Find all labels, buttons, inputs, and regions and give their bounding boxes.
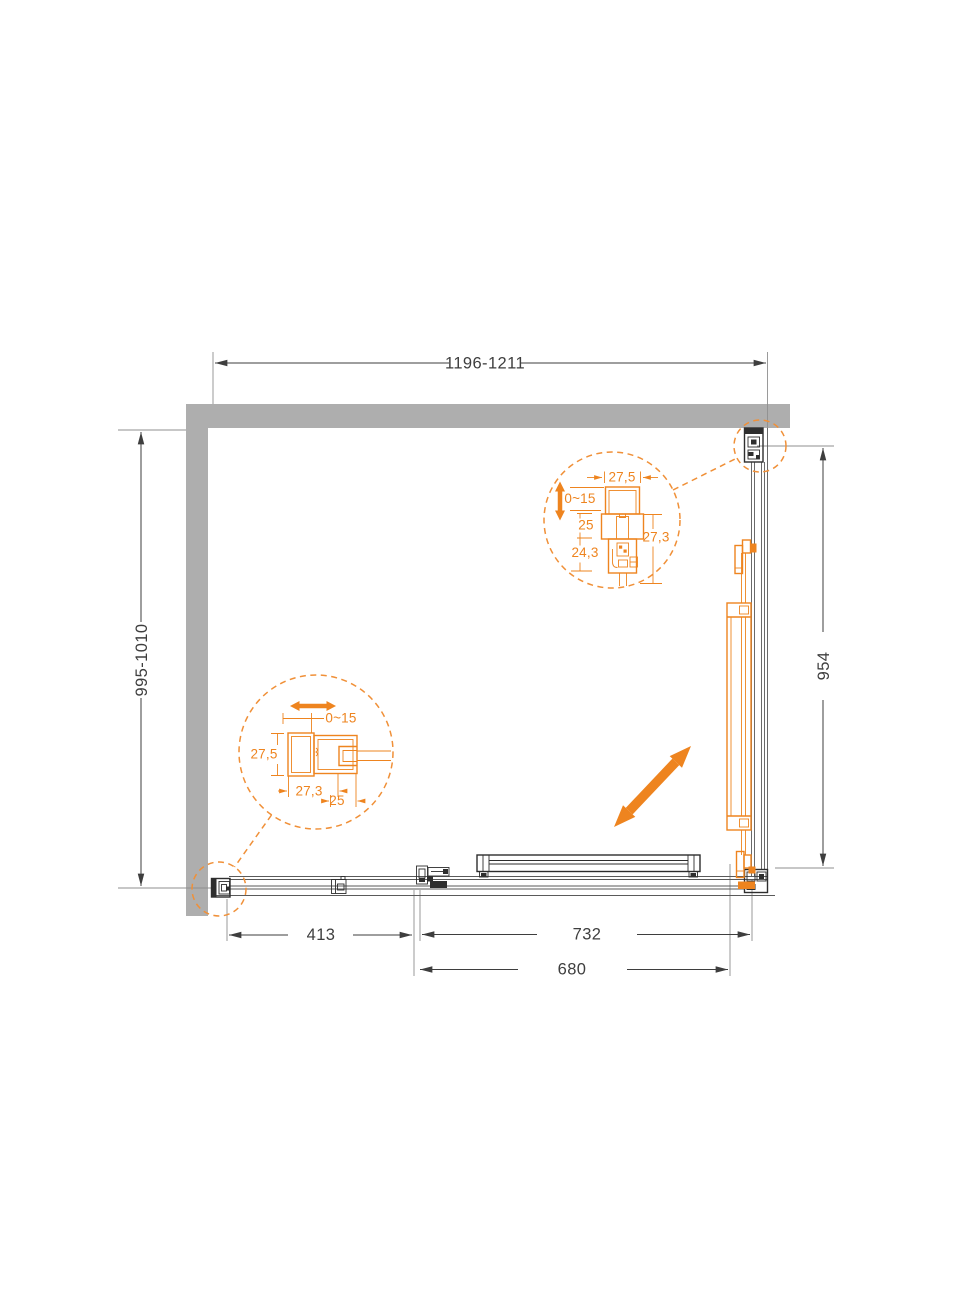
detail-side-width-label: 27,3: [295, 784, 322, 799]
detail-side-profile: 0~15 27,5 27,3 25: [250, 701, 391, 808]
dim-label-bottom-fixed: 413: [307, 926, 336, 944]
top-wall: [186, 404, 790, 428]
technical-drawing-page: 1196-1211 995-1010 954 413 732 680: [0, 0, 975, 1300]
corner-connector: [745, 870, 768, 893]
sliding-door-bottom: [477, 855, 700, 877]
dim-label-left-depth: 995-1010: [133, 624, 151, 697]
dim-bottom-entry: 680: [420, 961, 728, 979]
dim-label-top-width: 1196-1211: [445, 355, 525, 373]
opening-direction-arrow-icon: [614, 746, 691, 827]
right-track: [752, 428, 768, 893]
dim-label-right-side: 954: [815, 652, 833, 681]
dim-bottom-total: 732: [414, 864, 752, 976]
wall-profile-bottom-left: [212, 879, 231, 898]
bottom-track: [211, 877, 775, 896]
dim-bottom-fixed: 413: [227, 899, 412, 944]
leader-top-detail: [673, 458, 737, 490]
profile-section-vertical: [602, 487, 644, 586]
detail-top-width-label: 27,5: [608, 470, 635, 485]
wall-profile-top-right: [745, 428, 764, 462]
detail-side-height-label: 27,5: [250, 747, 277, 762]
door-roller-bottom-right: [737, 830, 756, 889]
walls: [186, 404, 790, 916]
detail-top-adjust-label: 0~15: [564, 491, 595, 506]
detail-top-dim-b-label: 24,3: [571, 545, 598, 560]
detail-side-dims: 0~15 27,5 27,3 25: [250, 701, 364, 808]
detail-top-dim-a-label: 25: [578, 518, 593, 533]
door-guide-bracket: [417, 866, 450, 888]
dim-label-bottom-entry: 680: [558, 961, 587, 979]
left-wall: [186, 404, 208, 916]
detail-top-dim-c-label: 27,3: [642, 530, 669, 545]
horizontal-adjust-arrow-icon: [290, 701, 336, 711]
detail-side-adjust-label: 0~15: [325, 711, 356, 726]
shower-enclosure-plan: 1196-1211 995-1010 954 413 732 680: [0, 0, 975, 1300]
leader-left-detail: [235, 815, 272, 867]
detail-side-overlap-label: 25: [329, 793, 344, 808]
dim-label-bottom-total: 732: [573, 926, 602, 944]
profile-section-horizontal: [288, 733, 391, 776]
dim-right-side: 954: [757, 446, 834, 868]
sliding-door-right: [727, 540, 757, 889]
door-hanger-top: [735, 540, 757, 603]
detail-top-profile: 27,5 0~15 25 24,3 27,3: [555, 470, 670, 587]
